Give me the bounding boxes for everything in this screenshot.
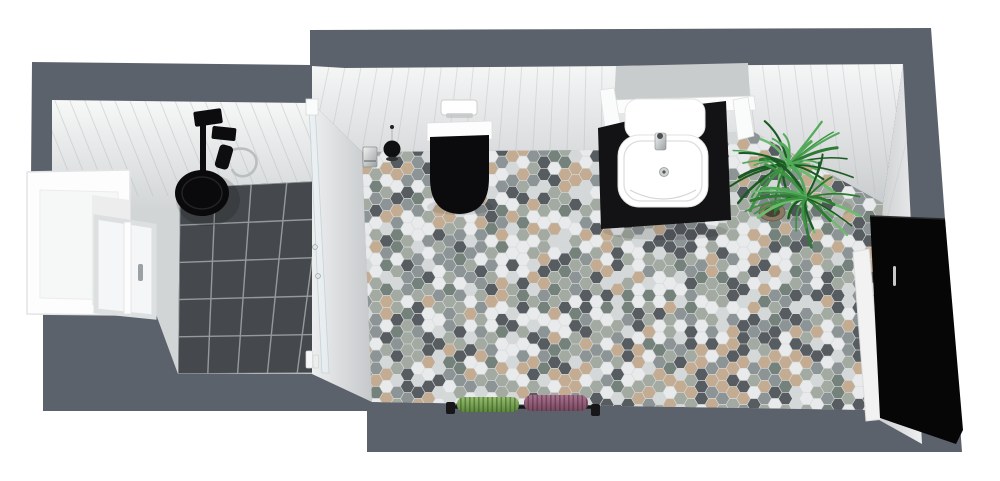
toilet-brush-head bbox=[384, 141, 401, 158]
basin-drain-hole bbox=[662, 170, 665, 173]
towel-purple-stripes bbox=[524, 395, 588, 411]
towel-rail-bracket bbox=[591, 404, 600, 416]
glass-top-profile bbox=[306, 99, 318, 115]
flush-plate-shadow bbox=[446, 113, 473, 118]
towel-green-stripes bbox=[457, 397, 519, 412]
towel-purple[interactable] bbox=[524, 395, 588, 411]
hex-tile bbox=[348, 423, 362, 435]
shower-bracket bbox=[211, 126, 236, 141]
towel-rail-bracket bbox=[446, 402, 455, 414]
flush-plate[interactable] bbox=[441, 100, 477, 115]
glass-clamp bbox=[313, 245, 318, 250]
faucet-cap bbox=[657, 133, 663, 139]
paper-holder-body bbox=[363, 147, 377, 167]
toilet-brush-knob bbox=[390, 125, 394, 129]
render-canvas bbox=[0, 0, 1000, 481]
window-handle[interactable] bbox=[138, 264, 143, 281]
shampoo-bottle bbox=[306, 351, 313, 368]
towel-green[interactable] bbox=[457, 397, 519, 412]
glass-clamp bbox=[316, 274, 321, 279]
toilet-brush-base bbox=[386, 157, 398, 161]
toilet-paper-holder[interactable] bbox=[363, 147, 377, 167]
tall-cabinet[interactable] bbox=[853, 216, 963, 444]
cabinet-handle[interactable] bbox=[893, 266, 896, 286]
cabinet-body[interactable] bbox=[870, 216, 963, 444]
hex-tile bbox=[348, 411, 362, 423]
shampoo-bottle bbox=[313, 355, 319, 368]
toilet-seat bbox=[430, 135, 489, 214]
window-mullion bbox=[124, 222, 131, 314]
